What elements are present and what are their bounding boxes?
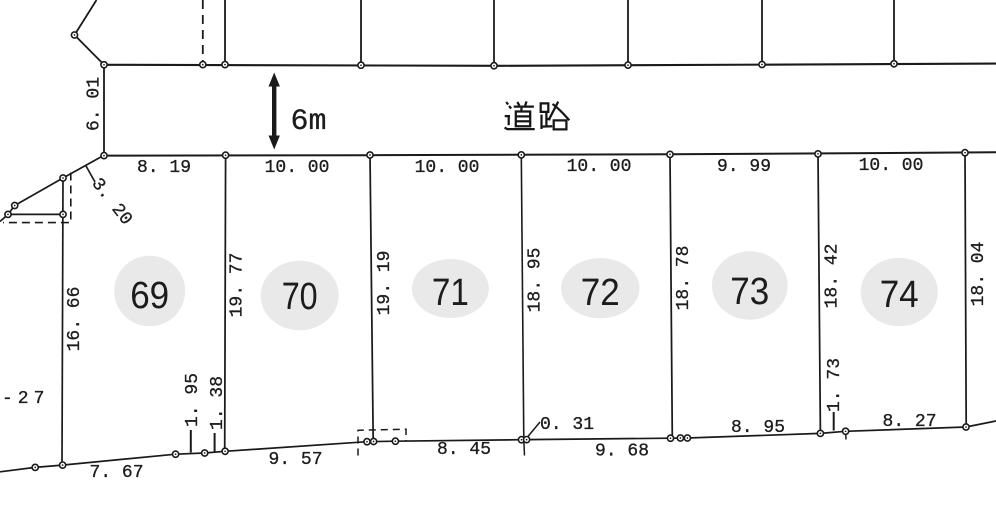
svg-text:8. 45: 8. 45 — [437, 440, 491, 460]
svg-text:0. 31: 0. 31 — [540, 415, 594, 435]
svg-text:19. 77: 19. 77 — [228, 253, 248, 318]
svg-text:70: 70 — [282, 276, 318, 318]
svg-text:10. 00: 10. 00 — [265, 158, 330, 178]
svg-text:16. 66: 16. 66 — [65, 287, 85, 352]
svg-text:69: 69 — [130, 275, 169, 317]
svg-text:9. 57: 9. 57 — [268, 450, 322, 470]
svg-text:9. 68: 9. 68 — [595, 442, 649, 462]
svg-text:1. 38: 1. 38 — [208, 376, 228, 430]
svg-text:7. 67: 7. 67 — [89, 463, 143, 483]
svg-text:72: 72 — [581, 272, 620, 314]
svg-text:3. 20: 3. 20 — [87, 175, 136, 230]
svg-text:8. 27: 8. 27 — [882, 412, 936, 432]
svg-text:10. 00: 10. 00 — [567, 157, 632, 177]
svg-text:18. 78: 18. 78 — [674, 246, 694, 311]
svg-text:10. 00: 10. 00 — [415, 158, 480, 178]
svg-text:18. 42: 18. 42 — [823, 244, 843, 309]
svg-text:-27: -27 — [2, 389, 49, 409]
svg-text:1. 95: 1. 95 — [183, 373, 203, 427]
svg-text:19. 19: 19. 19 — [375, 251, 395, 316]
svg-text:6. 01: 6. 01 — [85, 77, 105, 131]
svg-text:73: 73 — [730, 271, 769, 313]
svg-text:18. 04: 18. 04 — [969, 242, 989, 307]
svg-text:8. 19: 8. 19 — [137, 158, 191, 178]
svg-text:8. 95: 8. 95 — [731, 418, 785, 438]
svg-text:6m: 6m — [291, 105, 327, 139]
svg-text:74: 74 — [880, 274, 919, 316]
svg-text:18. 95: 18. 95 — [526, 248, 546, 313]
svg-text:10. 00: 10. 00 — [859, 156, 924, 176]
svg-text:9. 99: 9. 99 — [717, 157, 771, 177]
svg-text:1. 73: 1. 73 — [825, 358, 845, 412]
svg-text:71: 71 — [432, 272, 469, 314]
